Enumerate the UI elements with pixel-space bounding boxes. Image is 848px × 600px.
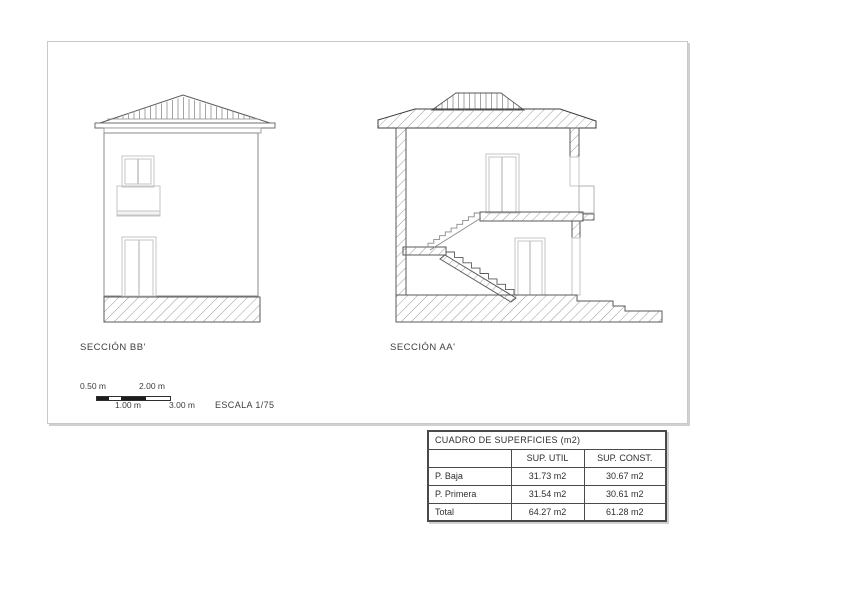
scale-label-0-50: 0.50 m — [75, 381, 111, 391]
bb-ground — [104, 297, 260, 322]
aa-stairs-upper — [428, 213, 481, 250]
bb-roof — [95, 95, 275, 133]
table-title-row: CUADRO DE SUPERFICIES (m2) — [428, 431, 666, 449]
row-util-value: 64.27 m2 — [511, 503, 584, 521]
table-title: CUADRO DE SUPERFICIES (m2) — [428, 431, 666, 449]
section-aa-label: SECCIÓN AA' — [390, 342, 455, 353]
scale-label-2-00: 2.00 m — [134, 381, 170, 391]
scale-ratio-label: ESCALA 1/75 — [215, 400, 274, 410]
scale-bar-segment — [97, 397, 109, 400]
plan-sheet: SECCIÓN BB' SECCIÓN AA' 0.50 m 2.00 m 1.… — [0, 0, 848, 600]
row-const-value: 61.28 m2 — [584, 503, 666, 521]
row-const-value: 30.61 m2 — [584, 485, 666, 503]
table-row: P. Baja 31.73 m2 30.67 m2 — [428, 467, 666, 485]
row-label: Total — [428, 503, 511, 521]
row-label: P. Baja — [428, 467, 511, 485]
aa-ground-door — [515, 238, 545, 295]
col-header-sup-const: SUP. CONST. — [584, 449, 666, 467]
table-header-row: SUP. UTIL SUP. CONST. — [428, 449, 666, 467]
scale-label-3-00: 3.00 m — [164, 400, 200, 410]
col-header-empty — [428, 449, 511, 467]
section-bb-label: SECCIÓN BB' — [80, 342, 146, 353]
scale-label-1-00: 1.00 m — [110, 400, 146, 410]
sections-drawing — [0, 0, 848, 600]
col-header-sup-util: SUP. UTIL — [511, 449, 584, 467]
aa-left-wall — [396, 128, 406, 295]
aa-upper-door — [486, 154, 519, 213]
surfaces-table: CUADRO DE SUPERFICIES (m2) SUP. UTIL SUP… — [427, 430, 667, 522]
aa-landing-slab — [403, 247, 446, 255]
aa-roof — [378, 93, 596, 128]
table-row: Total 64.27 m2 61.28 m2 — [428, 503, 666, 521]
section-aa-figure — [378, 93, 662, 322]
section-bb-figure — [95, 95, 275, 322]
row-label: P. Primera — [428, 485, 511, 503]
row-util-value: 31.54 m2 — [511, 485, 584, 503]
row-util-value: 31.73 m2 — [511, 467, 584, 485]
aa-ground — [396, 295, 662, 322]
aa-balcony-parapet — [579, 186, 594, 213]
table-row: P. Primera 31.54 m2 30.61 m2 — [428, 485, 666, 503]
row-const-value: 30.67 m2 — [584, 467, 666, 485]
aa-floor-slab — [480, 212, 594, 221]
